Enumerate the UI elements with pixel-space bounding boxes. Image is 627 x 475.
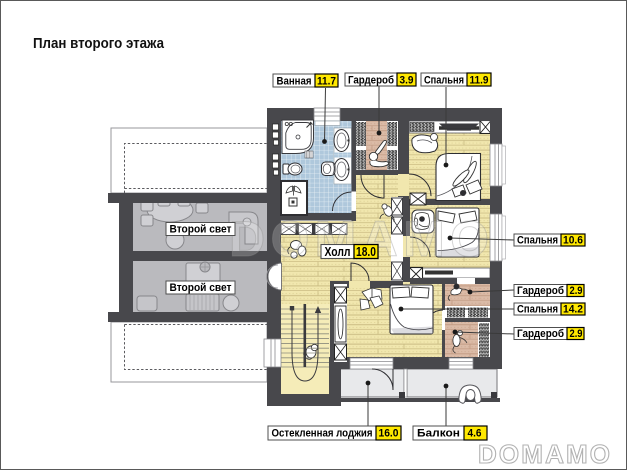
svg-text:11.7: 11.7 <box>317 76 336 88</box>
svg-text:Спальня: Спальня <box>517 304 558 316</box>
svg-text:Спальня: Спальня <box>424 75 464 87</box>
svg-text:Гардероб: Гардероб <box>517 285 564 297</box>
svg-text:Спальня: Спальня <box>517 235 558 247</box>
svg-text:Гардероб: Гардероб <box>517 328 564 340</box>
svg-text:14.2: 14.2 <box>563 304 583 316</box>
svg-text:Балкон: Балкон <box>417 428 460 440</box>
svg-text:План второго этажа: План второго этажа <box>33 35 165 52</box>
svg-text:16.0: 16.0 <box>379 428 399 440</box>
svg-text:2.9: 2.9 <box>570 328 583 340</box>
svg-text:Гардероб: Гардероб <box>348 75 394 87</box>
svg-text:Второй свет: Второй свет <box>170 224 233 236</box>
svg-text:4.6: 4.6 <box>468 428 482 440</box>
svg-text:11.9: 11.9 <box>470 75 489 87</box>
svg-text:3.9: 3.9 <box>400 75 414 87</box>
svg-text:Остекленная лоджия: Остекленная лоджия <box>272 428 373 440</box>
svg-text:Ванная: Ванная <box>277 76 312 88</box>
svg-text:18.0: 18.0 <box>356 245 376 259</box>
svg-text:10.6: 10.6 <box>563 235 583 247</box>
svg-text:Второй свет: Второй свет <box>170 282 233 294</box>
svg-text:2.9: 2.9 <box>570 285 583 297</box>
svg-text:Холл: Холл <box>325 245 351 259</box>
